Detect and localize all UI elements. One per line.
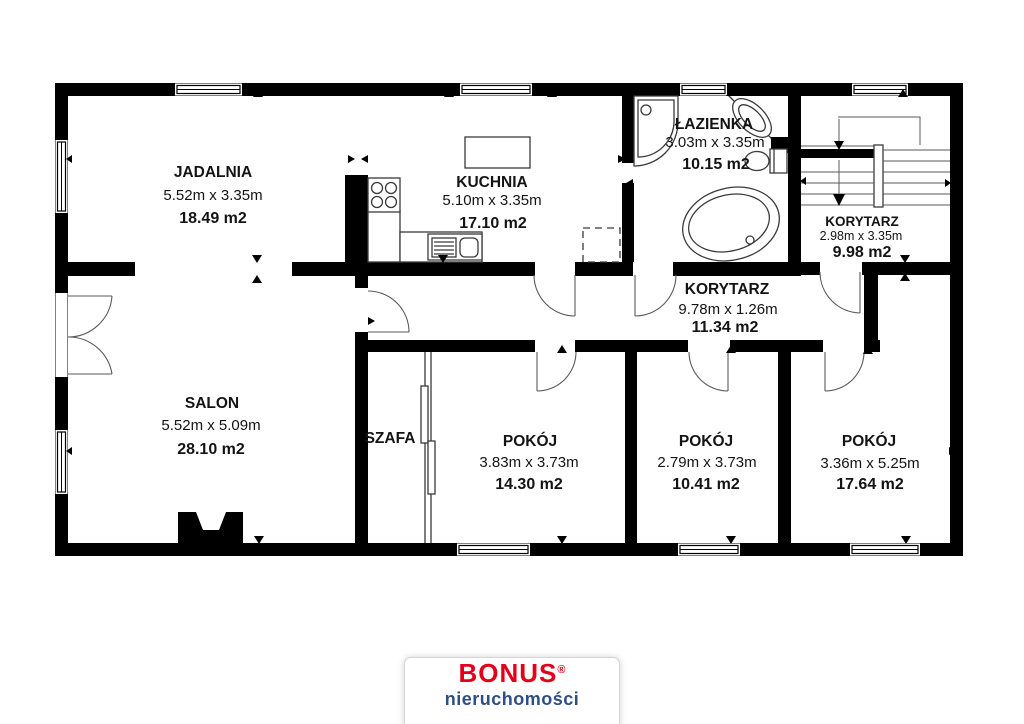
logo-brand-text: BONUS bbox=[458, 658, 557, 688]
room-name: KUCHNIA bbox=[456, 174, 527, 191]
room-name: KORYTARZ bbox=[685, 281, 770, 298]
logo-tagline: nieruchomości bbox=[405, 689, 619, 709]
floor-plan: JADALNIA 5.52m x 3.35m 18.49 m2 KUCHNIA … bbox=[0, 0, 1024, 724]
room-dims: 3.36m x 5.25m bbox=[820, 455, 919, 472]
stairs-direction-arrow bbox=[833, 119, 845, 206]
room-lazienka: ŁAZIENKA 3.03m x 3.35m 10.15 m2 bbox=[665, 116, 764, 173]
room-area: 18.49 m2 bbox=[179, 210, 247, 227]
room-name: KORYTARZ bbox=[825, 214, 899, 229]
room-area: 10.15 m2 bbox=[682, 156, 750, 173]
fridge-outline bbox=[583, 228, 620, 262]
room-area: 11.34 m2 bbox=[692, 319, 759, 336]
room-area: 17.64 m2 bbox=[836, 476, 904, 493]
door-salon-korytarz bbox=[368, 291, 409, 332]
kitchen-cabinet bbox=[368, 211, 400, 262]
room-dims: 2.79m x 3.73m bbox=[657, 454, 756, 471]
room-pokoj-3: POKÓJ 3.36m x 5.25m 17.64 m2 bbox=[820, 432, 919, 493]
room-name: JADALNIA bbox=[174, 164, 252, 181]
window-korytarz-top bbox=[852, 84, 908, 96]
kitchen-sink-icon bbox=[428, 234, 482, 260]
stove-icon bbox=[368, 178, 400, 212]
logo-brand-line: BONUS® bbox=[405, 659, 619, 689]
door-pokoj2 bbox=[689, 352, 728, 391]
room-area: 9.98 m2 bbox=[833, 244, 892, 261]
window-jadalnia-top bbox=[175, 84, 242, 96]
wall-kuchnia-lazienka-lower bbox=[622, 183, 634, 262]
wall-pokoj2-pokoj3 bbox=[778, 352, 791, 543]
room-name: SZAFA bbox=[365, 430, 416, 447]
kitchen-island bbox=[465, 137, 530, 168]
room-area: 14.30 m2 bbox=[495, 476, 563, 493]
room-name: POKÓJ bbox=[842, 432, 896, 450]
wall-corridor-end-bar bbox=[864, 262, 878, 352]
window-pokoj3-bottom bbox=[850, 544, 920, 556]
wall-corridor-left-stub bbox=[355, 275, 368, 288]
wall-pokoj1-pokoj2 bbox=[625, 352, 637, 543]
floorplan-page: JADALNIA 5.52m x 3.35m 18.49 m2 KUCHNIA … bbox=[0, 0, 1024, 724]
room-pokoj-1: POKÓJ 3.83m x 3.73m 14.30 m2 bbox=[479, 432, 578, 493]
window-jadalnia-left bbox=[56, 140, 68, 213]
wall-jadalnia-salon-stub bbox=[55, 262, 135, 276]
wall-stairs-stub bbox=[801, 149, 875, 158]
room-dims: 3.83m x 3.73m bbox=[479, 454, 578, 471]
shower-icon bbox=[634, 96, 678, 166]
wall-rooms-top bbox=[575, 340, 688, 352]
door-kuchnia bbox=[534, 275, 575, 316]
door-pokoj1 bbox=[537, 352, 576, 391]
wall-segment bbox=[801, 262, 820, 275]
window-kuchnia-top bbox=[460, 84, 532, 96]
room-area: 28.10 m2 bbox=[177, 441, 245, 458]
wall-right bbox=[950, 83, 963, 556]
door-lazienka bbox=[635, 275, 676, 316]
room-korytarz-gorny: KORYTARZ 2.98m x 3.35m 9.98 m2 bbox=[820, 214, 903, 261]
wall-kuchnia-lazienka-upper bbox=[622, 83, 634, 163]
room-area: 10.41 m2 bbox=[672, 476, 740, 493]
room-pokoj-2: POKÓJ 2.79m x 3.73m 10.41 m2 bbox=[657, 432, 756, 493]
room-area: 17.10 m2 bbox=[459, 215, 527, 232]
room-dims: 5.52m x 5.09m bbox=[161, 417, 260, 434]
wall-segment bbox=[673, 262, 801, 276]
wall-rooms-top bbox=[730, 340, 791, 352]
registered-mark-icon: ® bbox=[557, 664, 565, 676]
room-name: POKÓJ bbox=[503, 432, 557, 450]
room-name: POKÓJ bbox=[679, 432, 733, 450]
room-dims: 2.98m x 3.35m bbox=[820, 229, 903, 243]
opening-salon-door bbox=[56, 293, 68, 377]
stairs bbox=[801, 117, 950, 207]
wardrobe-sliding-door bbox=[421, 352, 435, 543]
room-kuchnia: KUCHNIA 5.10m x 3.35m 17.10 m2 bbox=[442, 174, 541, 232]
room-dims: 9.78m x 1.26m bbox=[678, 301, 777, 318]
window-pokoj1-bottom bbox=[457, 544, 530, 556]
room-name: SALON bbox=[185, 395, 239, 412]
stairs-stringer bbox=[874, 145, 883, 207]
bonus-logo: BONUS® nieruchomości bbox=[404, 657, 620, 724]
wall-segment bbox=[575, 262, 633, 276]
room-name: ŁAZIENKA bbox=[675, 116, 753, 133]
wall-lazienka-korytarz bbox=[788, 83, 801, 262]
room-dims: 5.10m x 3.35m bbox=[442, 192, 541, 209]
room-salon: SALON 5.52m x 5.09m 28.10 m2 bbox=[161, 395, 260, 458]
room-szafa: SZAFA bbox=[365, 430, 416, 447]
room-korytarz: KORYTARZ 9.78m x 1.26m 11.34 m2 bbox=[678, 281, 777, 336]
window-pokoj2-bottom bbox=[678, 544, 740, 556]
wall-kitchen-corridor bbox=[292, 262, 535, 276]
room-dims: 5.52m x 3.35m bbox=[163, 187, 262, 204]
door-pokoj3 bbox=[825, 352, 864, 391]
door-korytarz-gorny bbox=[820, 272, 860, 313]
wall-rooms-top bbox=[368, 340, 535, 352]
window-salon-left bbox=[56, 430, 68, 494]
room-dims: 3.03m x 3.35m bbox=[665, 134, 764, 151]
fireplace-icon bbox=[178, 512, 243, 543]
window-lazienka-top bbox=[680, 84, 727, 96]
room-jadalnia: JADALNIA 5.52m x 3.35m 18.49 m2 bbox=[163, 164, 262, 227]
toilet-icon bbox=[745, 149, 787, 173]
wall-pokoj3-top-left bbox=[791, 340, 823, 352]
wall-jadalnia-kuchnia bbox=[345, 175, 368, 275]
french-door-salon bbox=[68, 296, 112, 374]
bathtub-icon bbox=[675, 177, 788, 271]
